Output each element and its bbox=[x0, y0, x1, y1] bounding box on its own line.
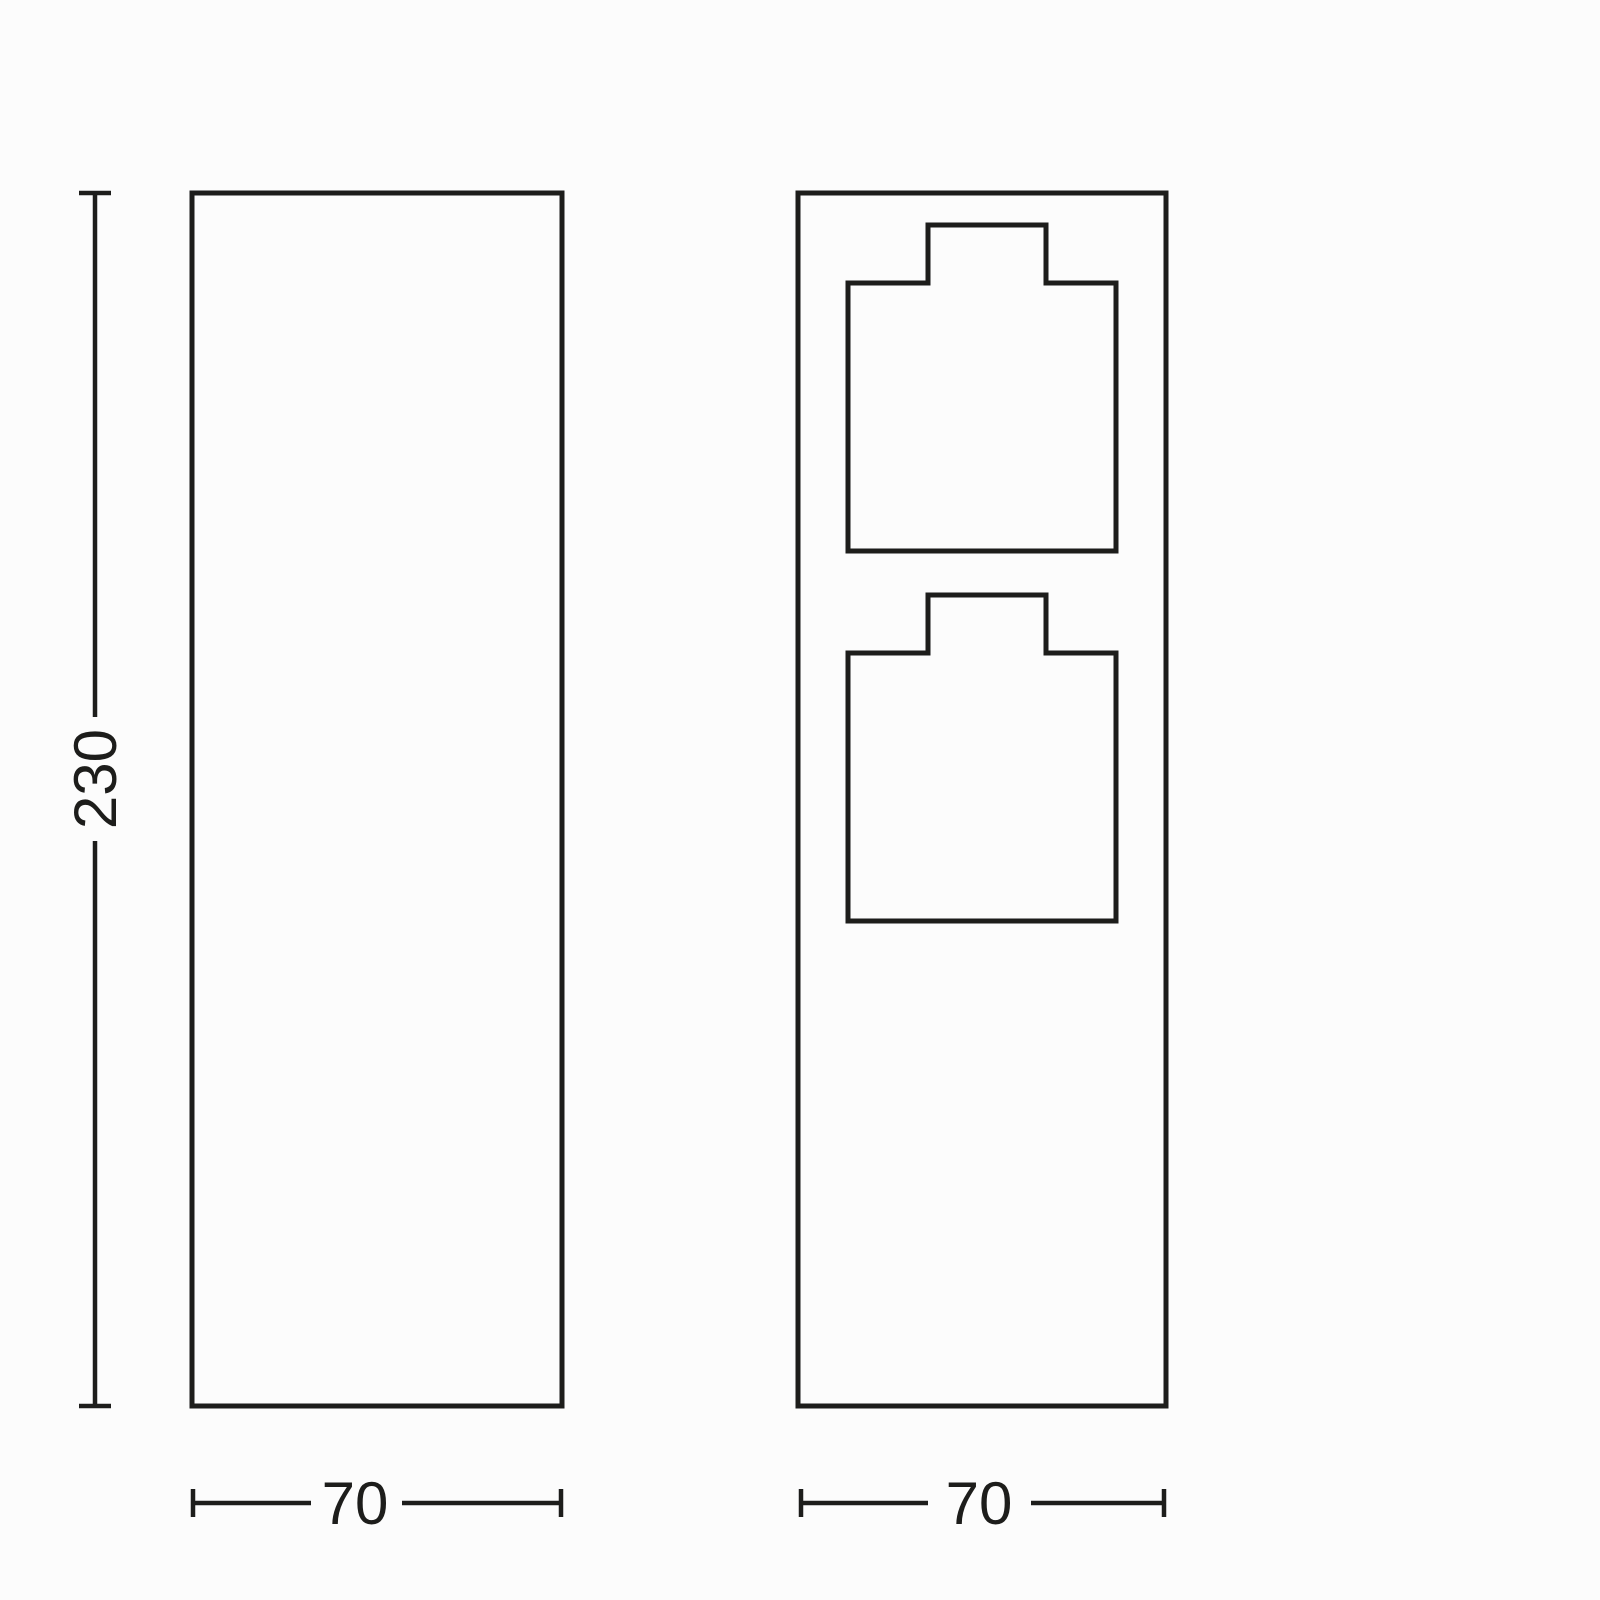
left-view bbox=[192, 193, 562, 1406]
right-view bbox=[798, 193, 1166, 1406]
technical-drawing-canvas: 230 70 70 bbox=[0, 0, 1600, 1600]
right-width-dimension-label: 70 bbox=[946, 1470, 1013, 1537]
left-width-dimension-label: 70 bbox=[322, 1470, 389, 1537]
height-dimension-label: 230 bbox=[62, 729, 129, 829]
right-width-dimension: 70 bbox=[801, 1470, 1164, 1537]
right-view-outline bbox=[798, 193, 1166, 1406]
left-view-outline bbox=[192, 193, 562, 1406]
socket-cover-top-icon bbox=[848, 225, 1116, 551]
dimension-drawing-page: 230 70 70 bbox=[0, 0, 1600, 1600]
socket-cover-bottom-icon bbox=[848, 595, 1116, 921]
height-dimension: 230 bbox=[62, 193, 129, 1406]
left-width-dimension: 70 bbox=[193, 1470, 561, 1537]
